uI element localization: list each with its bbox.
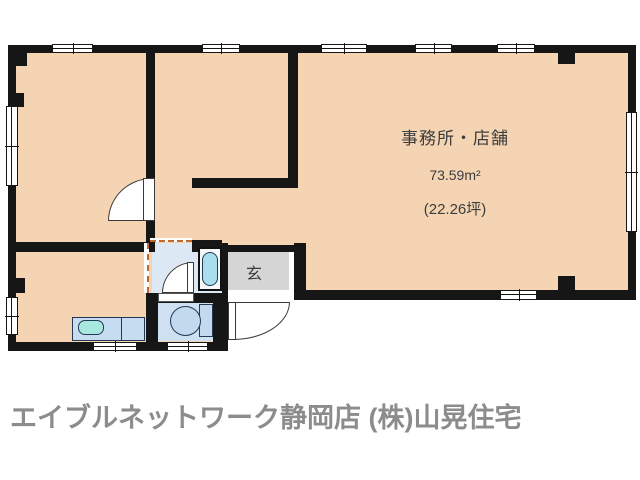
window-top-3 [321, 44, 367, 53]
pillar-office-top [558, 53, 575, 64]
corner-notch-top-left [8, 45, 27, 66]
office-room-area-tsubo: (22.26坪) [360, 198, 550, 219]
window-top-1 [52, 44, 93, 53]
entrance-door-leaf [228, 302, 236, 340]
window-left-lower [6, 297, 18, 335]
window-top-4 [415, 44, 452, 53]
window-bottom-kitchen [93, 342, 137, 351]
wall-toilet-left [146, 293, 158, 351]
opening-dashed-left [144, 243, 149, 293]
window-bottom-office [500, 290, 537, 300]
room1-door-leaf [143, 178, 155, 221]
bathtub [202, 252, 218, 286]
toilet-door-leaf [187, 262, 194, 293]
window-top-2 [202, 44, 240, 53]
wall-entrance-right [294, 243, 306, 300]
toilet-door-threshold [158, 293, 194, 302]
kitchen-sink [78, 320, 104, 335]
wall-bottom-right [294, 290, 636, 300]
pillar-left-lower [8, 278, 25, 293]
kitchen-counter-divider [121, 317, 122, 341]
entrance-opening [228, 290, 294, 300]
wall-washroom-entrance [222, 243, 228, 293]
office-room-name: 事務所・店舗 [360, 124, 550, 149]
pillar-left-upper [8, 93, 24, 107]
pillar-office-bottom [558, 276, 575, 290]
floor-plan-image: 事務所・店舗 73.59m² (22.26坪) 玄 エイブルネットワーク静岡店 … [0, 0, 640, 480]
agency-footer-text: エイブルネットワーク静岡店 (株)山晃住宅 [10, 396, 521, 435]
wall-office-corridor [192, 178, 298, 188]
wall-toilet-right [213, 293, 228, 351]
office-room-label-group: 事務所・店舗 73.59m² (22.26坪) [360, 124, 550, 219]
opening-dashed-top [150, 238, 192, 242]
wall-lower-room-top [8, 242, 155, 252]
window-top-5 [497, 44, 535, 53]
wall-room-divider-upper [146, 53, 155, 178]
wall-office-left [288, 53, 298, 188]
window-left-upper [6, 106, 18, 186]
toilet-bowl [170, 306, 201, 336]
toilet-tank [199, 304, 213, 337]
office-room-area-m2: 73.59m² [360, 167, 550, 183]
entrance-door-swing [233, 302, 290, 340]
window-bottom-toilet [167, 342, 208, 351]
wall-above-entrance [222, 245, 294, 252]
window-right [626, 112, 637, 232]
entrance-label: 玄 [246, 260, 262, 284]
